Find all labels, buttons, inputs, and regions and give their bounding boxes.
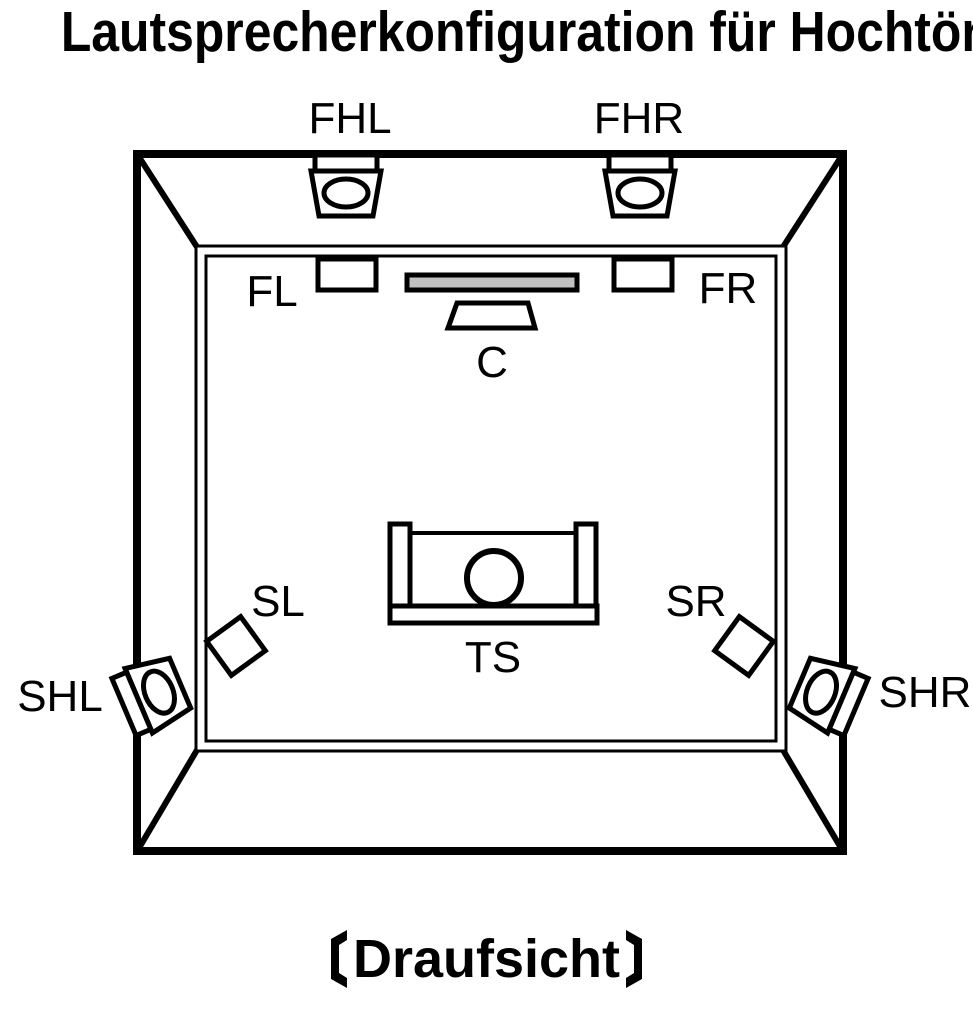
label-fhr: FHR	[594, 94, 684, 143]
corner-diagonal-top-left	[139, 157, 197, 247]
view-caption: Draufsicht	[0, 926, 973, 992]
label-sr: SR	[665, 577, 726, 626]
seat-armrest-left	[390, 524, 410, 606]
speaker-front-left	[318, 259, 376, 290]
label-fhl: FHL	[308, 94, 391, 143]
tv-screen	[407, 275, 577, 290]
label-shr: SHR	[879, 668, 972, 717]
label-sl: SL	[251, 577, 305, 626]
label-shl: SHL	[17, 672, 103, 721]
label-fr: FR	[699, 264, 758, 313]
fhr-mount	[609, 155, 671, 171]
speaker-center	[448, 303, 535, 328]
corner-diagonal-bottom-left	[139, 750, 197, 848]
seat-back-bar	[390, 606, 597, 623]
speaker-surround-height-left	[110, 651, 194, 739]
speaker-front-height-left	[311, 155, 381, 216]
room-diagram: FHL FHR FL FR C SL SR SHL SHR TS	[0, 0, 973, 1016]
speaker-front-right	[614, 259, 672, 290]
fhl-mount	[315, 155, 377, 171]
label-fl: FL	[246, 267, 297, 316]
left-lenticular-bracket-icon	[327, 929, 349, 989]
corner-diagonal-top-right	[783, 157, 841, 247]
speaker-front-height-right	[605, 155, 675, 216]
corner-diagonal-bottom-right	[783, 750, 841, 848]
view-caption-text: Draufsicht	[353, 929, 620, 989]
seat-armrest-right	[576, 524, 596, 606]
fhr-driver	[618, 179, 662, 207]
fhl-driver	[324, 179, 368, 207]
listener-head	[467, 551, 521, 605]
label-ts: TS	[465, 633, 521, 682]
diagram-canvas: Lautsprecherkonfiguration für Hochtöner	[0, 0, 973, 1016]
speaker-surround-height-right	[786, 651, 870, 739]
right-lenticular-bracket-icon	[624, 929, 646, 989]
label-c: C	[476, 338, 508, 387]
